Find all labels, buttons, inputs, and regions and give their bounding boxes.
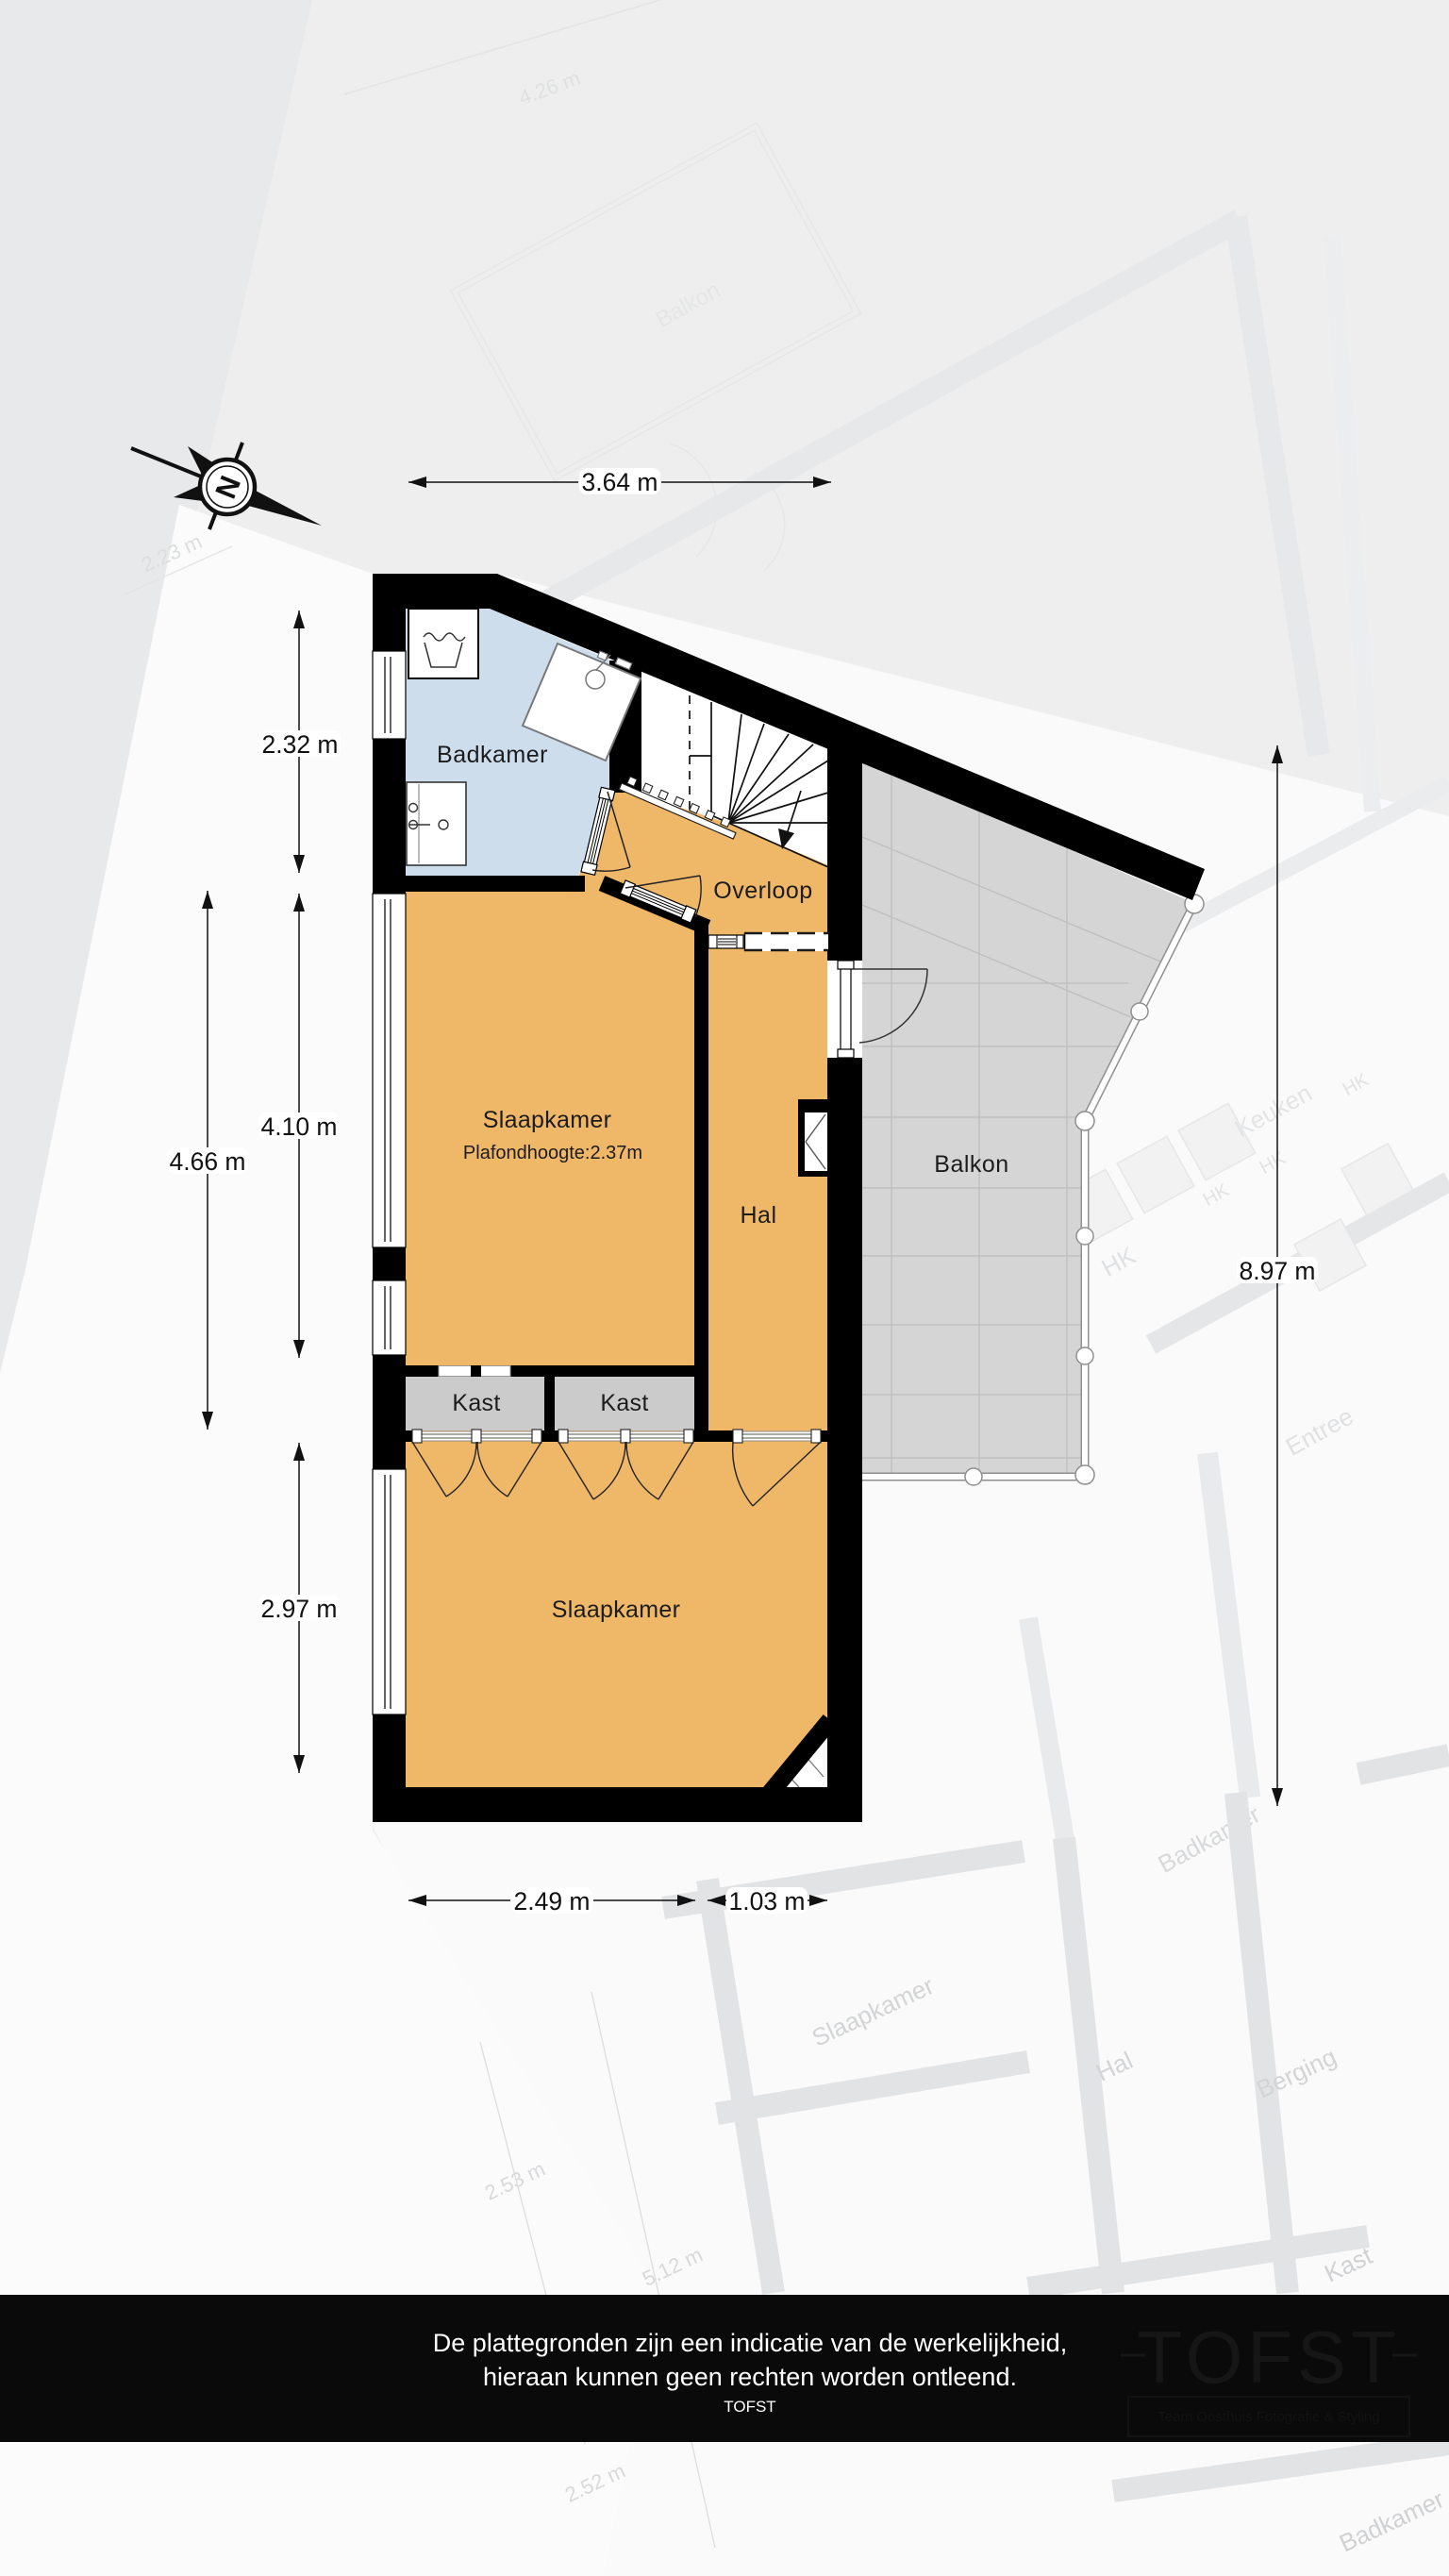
svg-text:Hal: Hal <box>740 1202 776 1229</box>
svg-text:3.64 m: 3.64 m <box>581 468 658 496</box>
svg-text:De plattegronden zijn een indi: De plattegronden zijn een indicatie van … <box>433 2329 1067 2357</box>
svg-text:8.97 m: 8.97 m <box>1239 1257 1315 1285</box>
svg-text:Balkon: Balkon <box>934 1151 1008 1178</box>
svg-text:4.66 m: 4.66 m <box>169 1147 245 1176</box>
svg-text:Slaapkamer: Slaapkamer <box>483 1107 611 1133</box>
svg-text:hieraan kunnen geen rechten wo: hieraan kunnen geen rechten worden ontle… <box>483 2363 1017 2391</box>
svg-text:2.49 m: 2.49 m <box>513 1887 590 1915</box>
svg-text:1.03 m: 1.03 m <box>728 1887 805 1915</box>
svg-text:TOFST: TOFST <box>724 2398 775 2416</box>
svg-text:2.97 m: 2.97 m <box>260 1595 337 1623</box>
svg-text:Plafondhoogte:2.37m: Plafondhoogte:2.37m <box>463 1143 642 1163</box>
svg-text:Overloop: Overloop <box>713 878 812 904</box>
svg-text:TOFST: TOFST <box>1137 2316 1400 2399</box>
svg-text:Kast: Kast <box>600 1390 648 1416</box>
svg-text:2.32 m: 2.32 m <box>261 730 338 759</box>
svg-text:Badkamer: Badkamer <box>437 742 548 768</box>
svg-text:Team Oosthuis Fotografie & Sty: Team Oosthuis Fotografie & Styling <box>1158 2409 1379 2425</box>
svg-text:Slaapkamer: Slaapkamer <box>552 1597 680 1623</box>
svg-text:4.10 m: 4.10 m <box>260 1112 337 1141</box>
svg-text:Kast: Kast <box>452 1390 500 1416</box>
